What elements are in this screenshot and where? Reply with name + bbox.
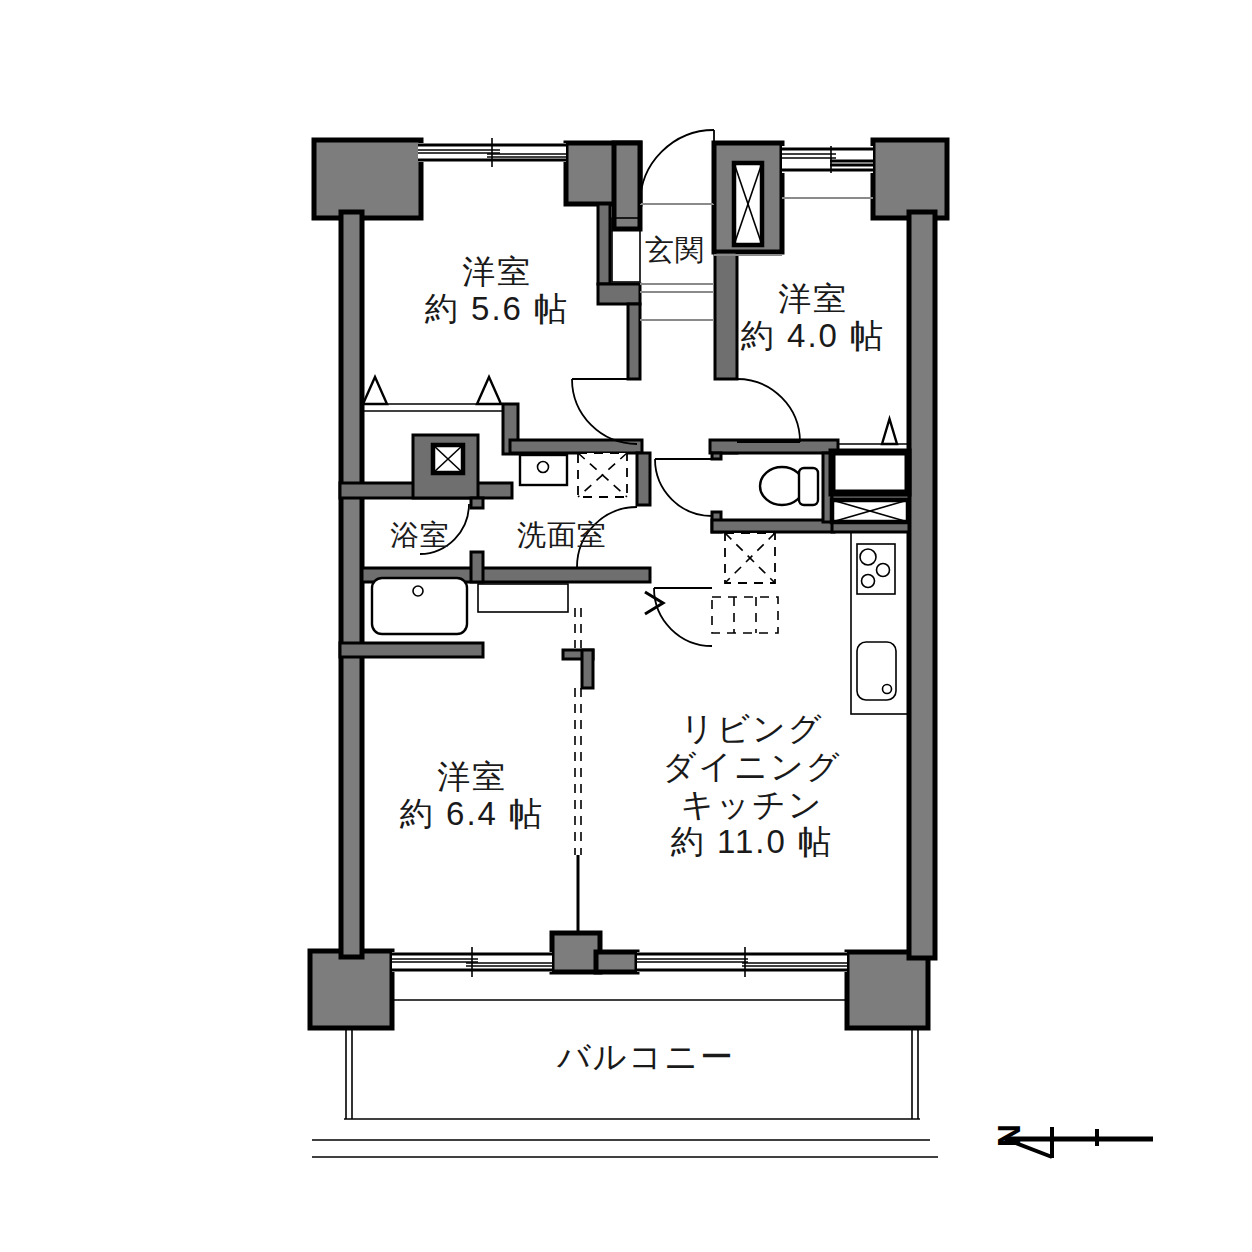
pillar-bottom-right <box>847 952 928 1028</box>
wall-segment <box>582 650 593 688</box>
label-balcony: バルコニー <box>556 1038 735 1075</box>
floor-plan: N 洋室 約 5.6 帖 洋室 約 4.0 帖 洋室 約 6.4 帖 リビング … <box>0 0 1252 1252</box>
wall-segment <box>712 453 721 459</box>
wall-top-mid-step <box>614 143 640 229</box>
room-name: 洋室 <box>437 758 507 795</box>
room-area: 約 6.4 帖 <box>399 795 544 832</box>
wall-segment <box>340 643 483 657</box>
washing-machine-space-icon <box>578 453 627 497</box>
room-name: リビング <box>680 710 823 747</box>
washbasin-icon <box>520 455 567 485</box>
wall-segment <box>712 520 834 532</box>
window-bedroom-b <box>782 146 873 173</box>
room-name: 洋室 <box>778 280 848 317</box>
wall-segment <box>598 204 610 284</box>
pillar-top-left <box>314 140 421 218</box>
label-entrance: 玄関 <box>645 234 705 266</box>
wall-segment <box>637 453 650 505</box>
wall-bottom-center-b <box>596 952 637 972</box>
pillar-top-right <box>873 140 947 218</box>
north-label: N <box>991 1124 1027 1147</box>
pillar-bottom-left <box>310 951 392 1028</box>
room-name: キッチン <box>680 786 823 823</box>
refrigerator-space-icon <box>725 533 775 583</box>
wall-left <box>341 212 362 957</box>
wall-segment <box>598 284 640 304</box>
room-area: 約 5.6 帖 <box>424 290 569 327</box>
room-area: 約 11.0 帖 <box>670 823 833 860</box>
wall-segment <box>471 498 483 508</box>
label-bathroom: 浴室 <box>390 519 450 551</box>
wall-segment <box>471 552 483 582</box>
room-name: ダイニング <box>663 748 842 785</box>
pipe-box-icon <box>832 500 908 522</box>
room-area: 約 4.0 帖 <box>740 317 885 354</box>
pipe-shaft-icon <box>734 163 762 245</box>
toilet-tank-icon <box>799 468 818 505</box>
wall-bottom-center-a <box>552 933 600 972</box>
wall-segment <box>715 252 737 379</box>
toilet-bowl-icon <box>760 467 804 505</box>
closet-box <box>832 452 908 493</box>
wall-segment <box>628 304 640 379</box>
room-name: 洋室 <box>462 253 532 290</box>
label-washroom: 洗面室 <box>517 519 607 551</box>
pipe-box-icon <box>433 445 463 473</box>
wall-right <box>909 212 935 958</box>
